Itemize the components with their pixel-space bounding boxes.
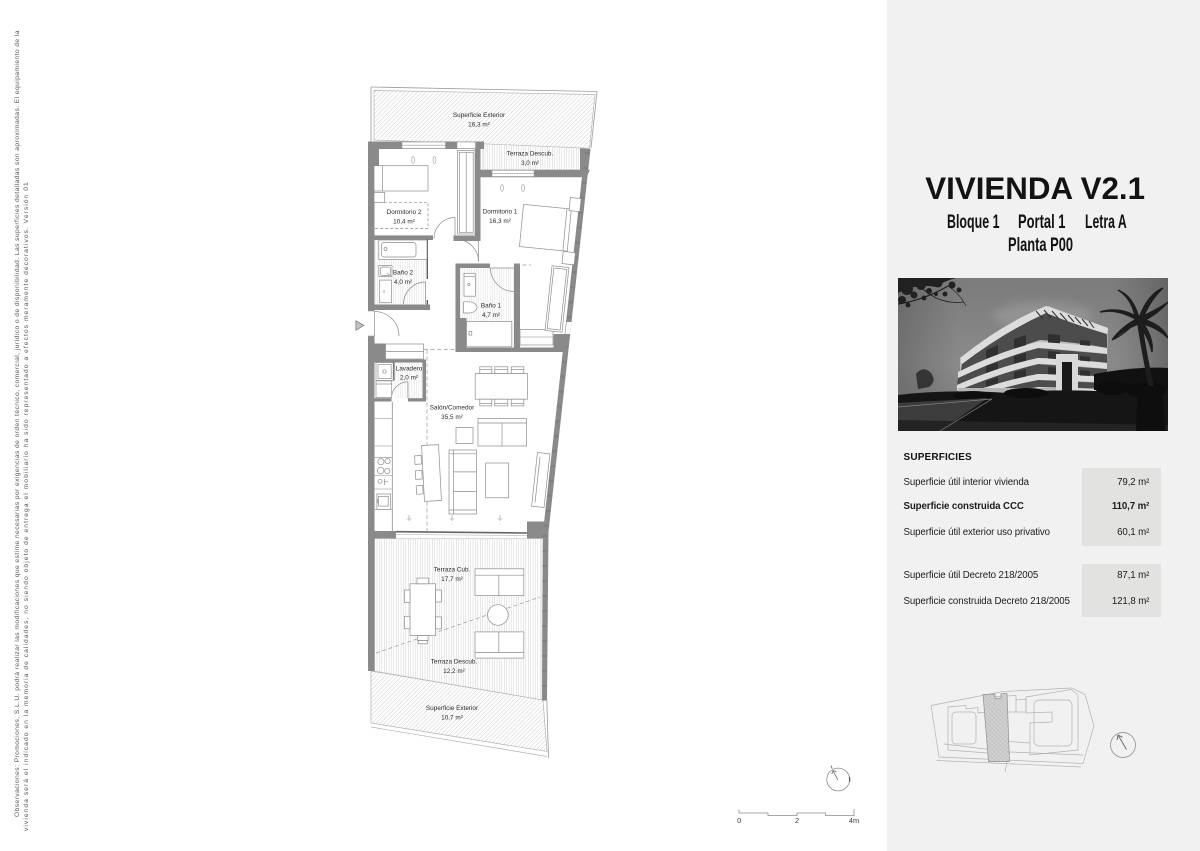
svg-text:16,3 m²: 16,3 m² — [489, 218, 511, 225]
svg-text:2,0 m²: 2,0 m² — [400, 375, 418, 382]
svg-text:4,0 m²: 4,0 m² — [394, 279, 412, 286]
svg-text:4,7 m²: 4,7 m² — [482, 312, 500, 319]
svg-text:Superficie Exterior: Superficie Exterior — [453, 112, 506, 119]
svg-text:12,2 m²: 12,2 m² — [443, 668, 465, 675]
svg-text:Dormitorio 1: Dormitorio 1 — [483, 209, 518, 216]
svg-text:Lavadero: Lavadero — [396, 366, 423, 373]
svg-text:10,7 m²: 10,7 m² — [441, 715, 463, 722]
svg-text:Baño 1: Baño 1 — [481, 303, 502, 310]
svg-text:17,7 m²: 17,7 m² — [441, 576, 463, 583]
svg-text:Dormitorio 2: Dormitorio 2 — [387, 209, 422, 216]
svg-text:2: 2 — [795, 816, 799, 825]
svg-text:Terraza Descub.: Terraza Descub. — [507, 151, 554, 158]
svg-text:4m: 4m — [849, 816, 859, 825]
svg-text:Terraza Descub.: Terraza Descub. — [431, 659, 478, 666]
svg-text:35,5 m²: 35,5 m² — [441, 414, 463, 421]
svg-text:0: 0 — [737, 816, 741, 825]
svg-text:3,0 m²: 3,0 m² — [521, 160, 539, 167]
svg-text:Baño 2: Baño 2 — [393, 270, 414, 277]
svg-text:Superficie Exterior: Superficie Exterior — [426, 705, 479, 712]
svg-text:Terraza Cub.: Terraza Cub. — [434, 567, 471, 574]
svg-text:10,4 m²: 10,4 m² — [393, 219, 415, 226]
svg-text:16,3 m²: 16,3 m² — [468, 122, 490, 129]
svg-text:Salón/Comedor: Salón/Comedor — [430, 405, 475, 412]
